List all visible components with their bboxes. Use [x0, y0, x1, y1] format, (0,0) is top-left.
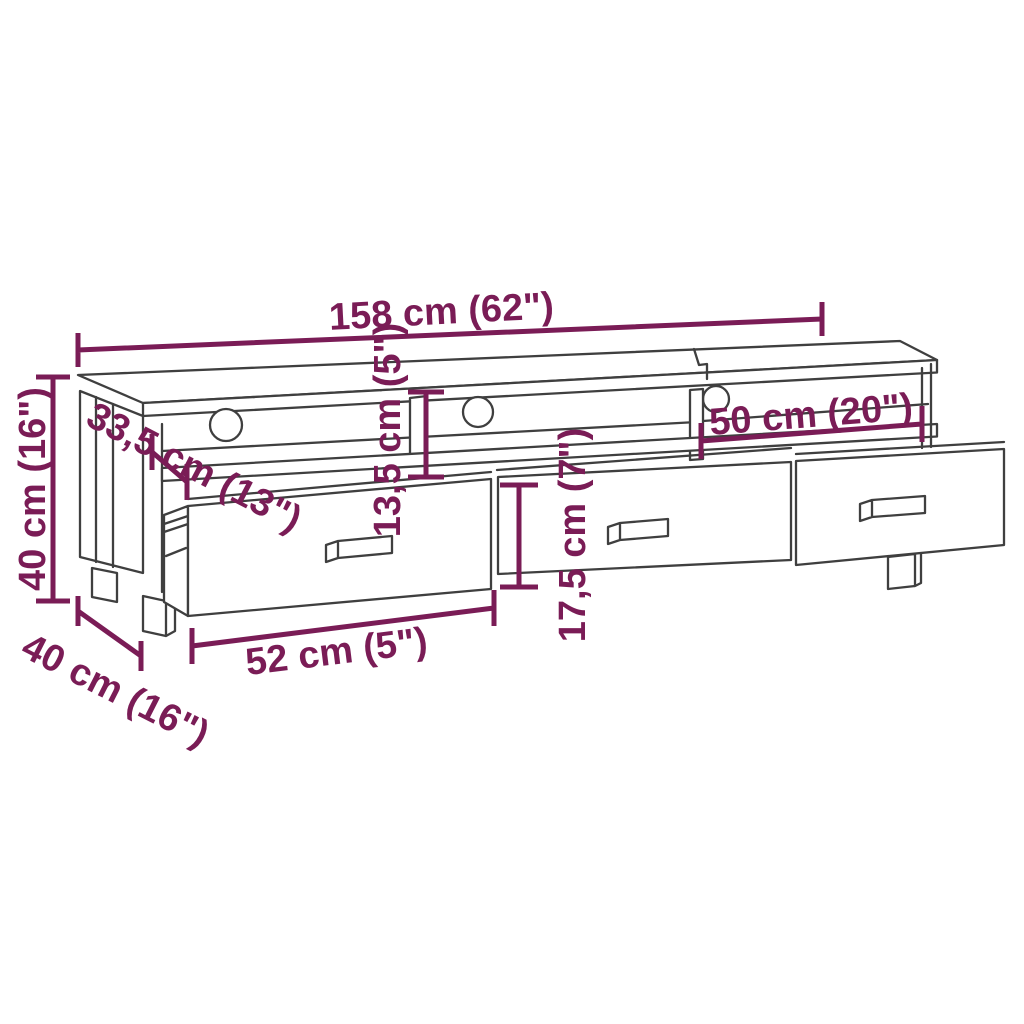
leg-back-left: [92, 568, 117, 602]
dim-drawer-height-label: 17,5 cm (7"): [552, 428, 594, 642]
dim-height-label: 40 cm (16"): [12, 387, 54, 591]
dim-compartment-height-label: 13,5 cm (5"): [367, 323, 409, 537]
dim-base-depth: 40 cm (16"): [15, 596, 216, 756]
drawer-2-front: [498, 462, 791, 574]
cable-hole-left: [210, 409, 242, 441]
product-dimension-diagram: 158 cm (62") 33,5 cm (13") 40 cm (16") 4…: [0, 0, 1024, 1024]
dim-height: 40 cm (16"): [12, 377, 70, 601]
dim-base-depth-label: 40 cm (16"): [15, 626, 216, 756]
cable-hole-middle: [463, 397, 493, 427]
tv-stand-diagram-svg: 158 cm (62") 33,5 cm (13") 40 cm (16") 4…: [0, 0, 1024, 1024]
